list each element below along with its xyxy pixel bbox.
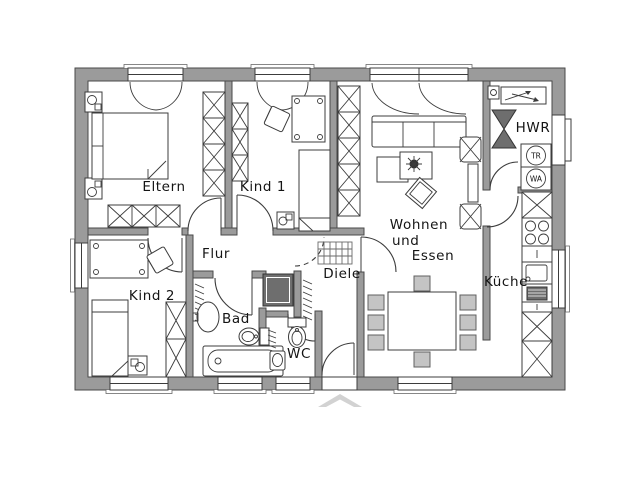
- dryer-label: TR: [530, 152, 541, 161]
- front-door-threshold: [322, 377, 357, 390]
- door-arc-bad: [215, 278, 252, 315]
- dryer-icon: TR: [521, 144, 551, 167]
- sideboard-icon: [460, 137, 481, 229]
- room-hwr-fixtures: TR WA: [488, 86, 551, 190]
- window-sill: [566, 246, 570, 312]
- wall-flur-north-stub: [182, 228, 188, 235]
- chair-icon: [368, 295, 384, 310]
- side-door-hwr: [552, 115, 565, 165]
- chair-icon: [460, 335, 476, 350]
- side-table-icon: [406, 178, 437, 209]
- label-diele: Diele: [323, 266, 361, 282]
- wall-kind1-wohnen: [330, 81, 337, 235]
- electric-panel-icon: [501, 87, 546, 104]
- plant-icon: [406, 156, 422, 172]
- washer-label: WA: [530, 175, 543, 184]
- wall-wc-diele: [315, 311, 322, 377]
- wall-wc-north-a: [266, 311, 288, 317]
- label-flur: Flur: [202, 246, 230, 262]
- wall-kind2-bad: [186, 235, 193, 377]
- label-bad: Bad: [222, 311, 250, 327]
- shower-icon: [263, 274, 293, 306]
- toilet-icon: [288, 318, 306, 348]
- door-arc-entrance: [322, 343, 354, 375]
- floor-plan: TR WA Eltern Kind 1 Flur: [0, 0, 640, 480]
- curtain-icon: [372, 83, 419, 114]
- window-sill: [71, 239, 75, 292]
- curtain-icon: [156, 82, 182, 110]
- wall-flur-north-b: [221, 228, 237, 235]
- label-wc: WC: [287, 346, 311, 362]
- wall-eltern-kind1: [225, 81, 232, 235]
- chair-icon: [414, 276, 430, 291]
- dining-table-icon: [388, 292, 456, 350]
- curtain-icon: [419, 83, 466, 114]
- chair-icon: [368, 315, 384, 330]
- dishwasher-icon: [527, 287, 547, 300]
- desk-icon: [292, 96, 325, 142]
- sofa-icon: [372, 116, 466, 147]
- curtain-icon: [130, 82, 156, 110]
- label-eltern: Eltern: [142, 179, 185, 195]
- chair-icon: [460, 315, 476, 330]
- washer-icon: WA: [521, 167, 551, 190]
- entrance-arrow-icon: [318, 394, 362, 407]
- room-kind2-furniture: [90, 240, 186, 377]
- toilet-icon: [239, 328, 269, 345]
- label-wohnen-2: und: [392, 233, 419, 249]
- room-wc-fixtures: [268, 318, 306, 370]
- room-kind1-furniture: [232, 96, 330, 231]
- chair-icon: [460, 295, 476, 310]
- bed-icon: [92, 300, 128, 376]
- hand-sink-icon: [270, 351, 285, 370]
- door-arc-kind1: [237, 195, 273, 231]
- chair-icon: [414, 352, 430, 367]
- label-kind1: Kind 1: [240, 179, 286, 195]
- room-eltern-furniture: [85, 92, 225, 227]
- boiler-icon: [492, 110, 516, 148]
- label-wohnen-3: Essen: [412, 248, 454, 264]
- floor-plan-canvas: TR WA Eltern Kind 1 Flur: [0, 0, 640, 480]
- wall-shower-diele: [294, 271, 301, 317]
- bed-icon: [299, 150, 330, 231]
- door-arc-wohnen: [361, 237, 396, 272]
- label-wohnen-1: Wohnen: [390, 217, 448, 233]
- opening-arc-flur-diele: [295, 237, 324, 266]
- label-kind2: Kind 2: [129, 288, 175, 304]
- side-door-leaf: [565, 119, 571, 161]
- radiator-icon: [303, 280, 312, 320]
- door-arc-eltern: [188, 198, 221, 231]
- sink-icon: [197, 302, 219, 332]
- nightstand-icon: [277, 212, 294, 229]
- chair-icon: [368, 335, 384, 350]
- label-hwr: HWR: [516, 120, 551, 136]
- meter-icon: [488, 86, 499, 99]
- curtain-icon: [257, 82, 283, 110]
- door-arc-kueche: [487, 196, 518, 227]
- wall-bad-north-a: [193, 271, 213, 278]
- wall-diele-wohnen: [357, 272, 364, 377]
- door-arc-hwr: [490, 162, 518, 190]
- wall-flur-north-a: [88, 228, 148, 235]
- label-kueche: Küche: [484, 274, 528, 290]
- dining-set: [368, 276, 476, 367]
- wardrobe-icon: [166, 302, 186, 377]
